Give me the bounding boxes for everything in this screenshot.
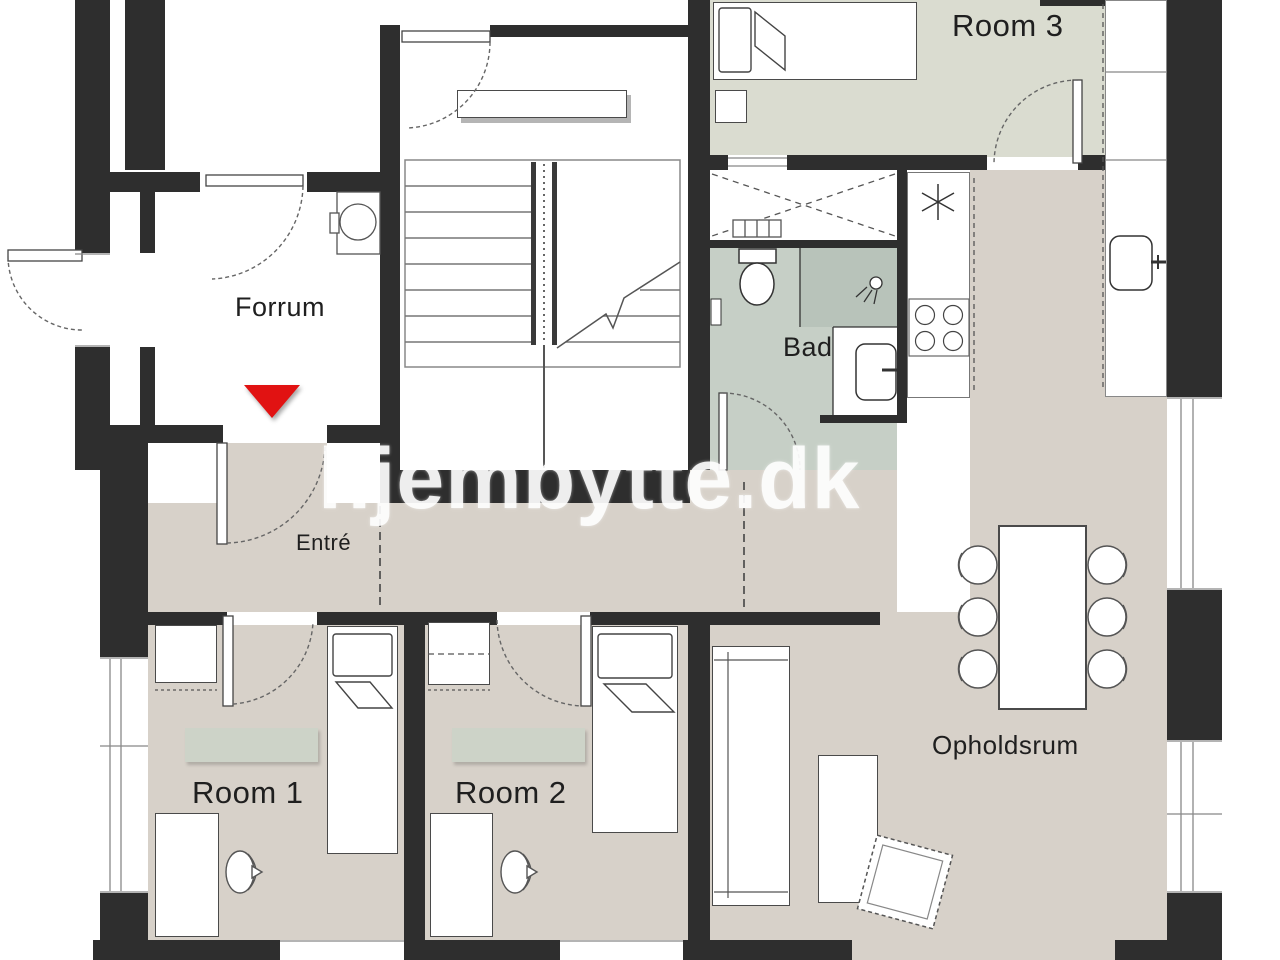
wall-forrum-top-left xyxy=(110,172,200,192)
forrum-sink xyxy=(330,192,380,254)
room2-desk xyxy=(430,813,493,937)
entre-doorway-floor xyxy=(223,443,327,505)
wall-room2-top xyxy=(590,612,690,625)
wall-living-top xyxy=(690,612,880,625)
wall-kitchen-divider xyxy=(897,157,907,423)
window-bottom-1 xyxy=(280,940,404,960)
staircase xyxy=(405,160,680,468)
wall-bath-top xyxy=(710,240,897,248)
wall-party xyxy=(125,0,165,170)
window-room3-sill xyxy=(728,155,787,170)
wall-room3-bottom-b xyxy=(787,155,987,170)
wall-right-mid xyxy=(1167,590,1222,740)
bath-vanity xyxy=(833,327,897,415)
wall-bottom-3 xyxy=(683,940,852,960)
wall-left-lower xyxy=(100,470,148,657)
wall-landing-top xyxy=(490,25,690,37)
watermark: hjembytte.dk xyxy=(318,436,860,522)
wall-right-upper xyxy=(1167,0,1222,397)
wall-left-mid xyxy=(75,347,110,425)
sofa xyxy=(712,646,790,906)
room1-label: Room 1 xyxy=(192,775,304,811)
entrance-door-opening xyxy=(75,253,110,347)
wall-right-lower xyxy=(1167,893,1222,960)
entrance-marker-triangle xyxy=(244,385,300,418)
forrum-door-arc xyxy=(212,186,303,279)
room3-nightstand xyxy=(715,90,747,123)
wall-bath-bottom xyxy=(820,415,897,423)
entrance-door-arc xyxy=(8,256,82,330)
landing-door-leaf xyxy=(402,31,490,42)
wall-forrum-bottom-left xyxy=(110,425,223,443)
wall-forrum-top-right xyxy=(307,172,380,192)
wall-center-vertical xyxy=(688,0,710,470)
wall-room1-top-a xyxy=(148,612,227,625)
room1-desk xyxy=(155,813,219,937)
shower-floor xyxy=(800,240,897,327)
forrum-door-leaf xyxy=(206,175,303,186)
window-living-east-2 xyxy=(1167,740,1222,893)
wall-room1-room2 xyxy=(404,612,425,960)
entre-label: Entré xyxy=(296,530,351,556)
wall-room2-living xyxy=(688,612,710,960)
wall-bottom-2 xyxy=(404,940,560,960)
room3-label: Room 3 xyxy=(952,8,1064,44)
wall-room3-bottom-a xyxy=(688,155,730,170)
wall-top-fragment xyxy=(1040,0,1105,6)
room1-rug xyxy=(185,728,318,762)
forrum-label: Forrum xyxy=(235,292,325,323)
wall-left-upper xyxy=(75,0,110,253)
room2-rug xyxy=(452,728,585,762)
lightwell-cross xyxy=(712,174,895,237)
landing-sideboard xyxy=(457,90,627,118)
corridor-east-floor xyxy=(1105,397,1167,612)
coffee-table xyxy=(818,755,878,903)
dining-table xyxy=(998,525,1087,710)
floor-plan: Room 3 Forrum Bad Entré Room 1 Room 2 Op… xyxy=(0,0,1280,960)
window-bottom-2 xyxy=(560,940,683,960)
kitchen-counter-west xyxy=(907,172,970,398)
window-living-east-1 xyxy=(1167,397,1222,590)
bad-label: Bad xyxy=(783,332,833,363)
kitchen-counter-east xyxy=(1105,0,1167,397)
entrance-door-leaf xyxy=(8,250,82,261)
room2-bed xyxy=(592,626,678,833)
room2-label: Room 2 xyxy=(455,775,567,811)
room1-bed xyxy=(327,626,398,854)
opholdsrum-label: Opholdsrum xyxy=(932,730,1079,761)
wall-stub-lower xyxy=(140,347,155,425)
room2-wardrobe xyxy=(428,622,490,685)
room1-wardrobe xyxy=(155,625,217,683)
window-room1-west xyxy=(100,657,148,893)
wall-bottom-1 xyxy=(93,940,280,960)
wall-stub-upper xyxy=(140,192,155,253)
room3-bed xyxy=(713,2,917,80)
